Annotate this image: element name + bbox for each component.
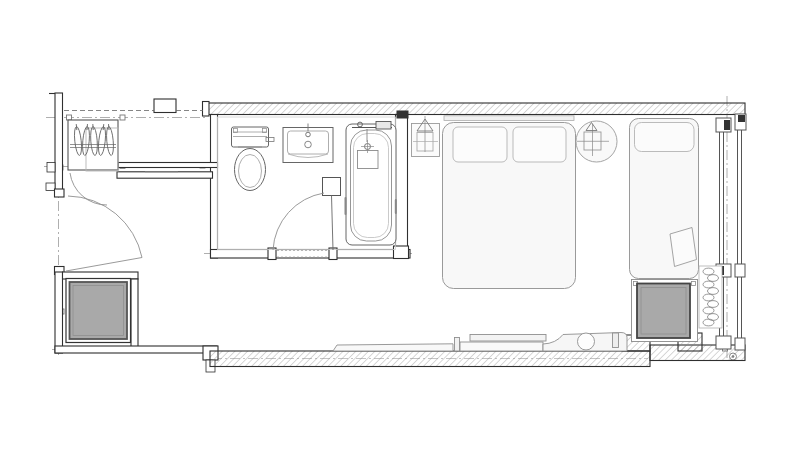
entry-door: Entry door swing [66, 196, 142, 271]
nightstand-left: Nightstand with pendant lamp symbol [412, 116, 440, 157]
entry-door-jamb-top [55, 189, 65, 197]
double-bed: Double bed with two pillows [443, 116, 576, 289]
wall-bathroom-left [211, 115, 218, 259]
wall-top-start-jamb [203, 102, 210, 117]
bench-support [455, 338, 460, 352]
switch-box [46, 183, 55, 191]
daybed: Daybed with pillow [630, 119, 699, 279]
wardrobe: Wardrobe with coat hangers [68, 120, 118, 205]
floor-plan-drawing: Bedroom [0, 0, 800, 470]
curtain-coil: Curtain coil symbol [699, 266, 722, 328]
wall-partition [396, 115, 408, 259]
wall-alcove-right [131, 279, 138, 348]
bench-box [460, 342, 543, 351]
bench-shelf [470, 335, 546, 342]
bathtub: Bathtub with fittings [346, 122, 397, 246]
switch-box [47, 163, 55, 173]
nightstand-right: Round nightstand with pendant lamp symbo… [576, 121, 617, 162]
bathroom-door: Bathroom door swing [273, 178, 341, 251]
daybed-pillow [635, 123, 695, 152]
column-left: Structural column (shaded) [66, 279, 131, 343]
wall-hall-upper [118, 163, 218, 168]
low-plank [333, 344, 453, 351]
cushion [670, 228, 697, 267]
column-right: Structural column (shaded) [632, 280, 698, 342]
bench-and-lounge: Low bench, shelf and lounge chair [333, 333, 627, 352]
wall-top-left-stub [154, 99, 176, 113]
pillow [453, 127, 507, 162]
washbasin: Washbasin vanity [283, 124, 333, 163]
toilet: Toilet [232, 127, 275, 191]
headboard [444, 116, 574, 121]
floor-plan-canvas: Bedroom [0, 0, 800, 470]
wall-left-upper [55, 93, 63, 195]
closet-door-swing [70, 173, 107, 205]
wall-bottom-main [210, 351, 650, 367]
wall-left-lower [55, 272, 63, 353]
wall-hall-lower [117, 172, 213, 178]
pillow [513, 127, 566, 162]
lounge-arm [613, 333, 619, 348]
lounge-cushion [578, 333, 595, 350]
wall-top [205, 103, 745, 115]
wall-bottom-left [55, 346, 217, 353]
